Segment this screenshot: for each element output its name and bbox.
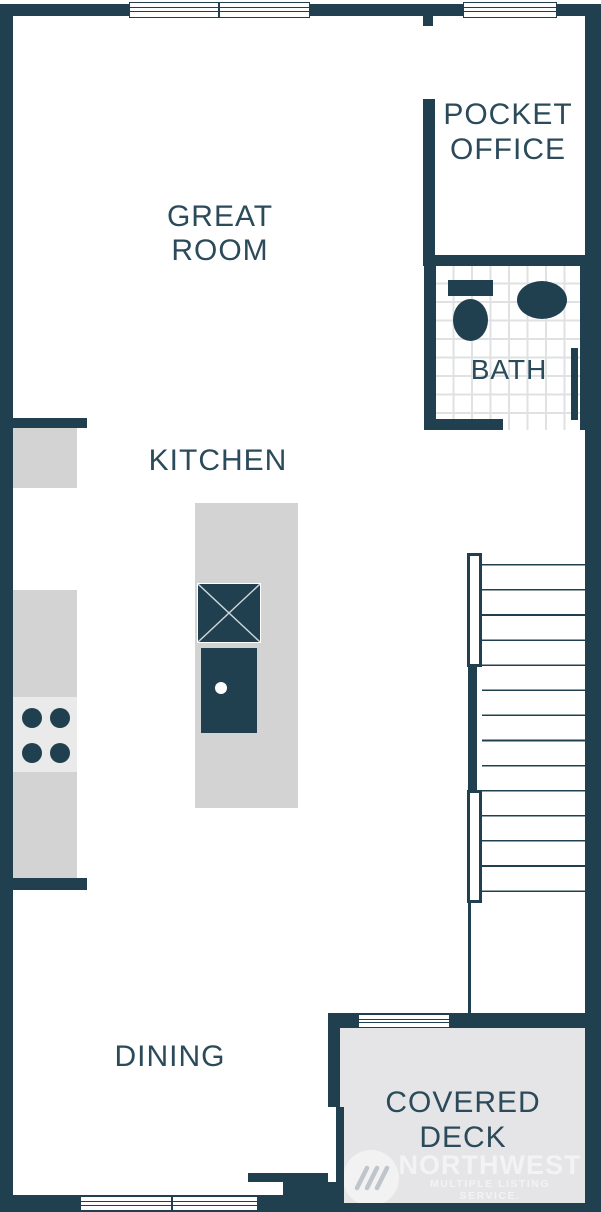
stair-rail-middle <box>468 667 477 790</box>
nwmls-logo-icon <box>343 1150 399 1206</box>
room-label-covered-deck: COVERED DECK <box>383 1085 543 1155</box>
room-label-dining: DINING <box>90 1040 250 1074</box>
great-room-line1: GREAT <box>120 200 320 234</box>
pocket-office-line1: POCKET <box>428 97 588 132</box>
toilet-bowl-icon <box>453 299 488 341</box>
wall-deck-left-line <box>336 1107 344 1187</box>
stair-rail-line <box>468 903 471 1013</box>
room-label-great-room: GREAT ROOM <box>120 200 320 268</box>
window-deck <box>358 1014 450 1028</box>
burner-icon <box>22 743 42 763</box>
window-top-left-mullion <box>218 2 220 18</box>
room-label-bath: BATH <box>459 353 559 387</box>
stair-rail-upper <box>467 553 482 667</box>
wall-bath-right-thick <box>580 266 586 430</box>
wall-office-bath-divider <box>423 255 601 266</box>
covered-deck-line2: DECK <box>383 1120 543 1155</box>
stair-rail-lower <box>467 790 482 903</box>
great-room-line2: ROOM <box>120 234 320 268</box>
stair-treads <box>482 564 585 893</box>
wall-right <box>585 4 601 1212</box>
wall-kitchen-stub-lower <box>0 878 87 890</box>
room-label-pocket-office: POCKET OFFICE <box>428 97 588 167</box>
window-top-right <box>463 2 557 18</box>
window-dining-mullion <box>171 1196 173 1211</box>
floorplan: NORTHWEST MULTIPLE LISTING SERVICE. GREA… <box>0 0 601 1212</box>
window-dining <box>80 1196 258 1211</box>
cooktop-icon <box>197 583 261 643</box>
wall-pocket-office-stub <box>423 16 433 26</box>
sink-icon <box>517 281 567 319</box>
wall-deck-left <box>328 1013 340 1107</box>
wall-bottom-corner-block <box>283 1182 344 1212</box>
burner-icon <box>50 708 70 728</box>
toilet-icon <box>448 280 493 296</box>
pocket-office-line2: OFFICE <box>428 132 588 167</box>
watermark-tagline: MULTIPLE LISTING SERVICE. <box>398 1178 582 1202</box>
wall-bath-bottom <box>424 419 503 430</box>
bath-door-leaf <box>571 348 578 420</box>
wall-bath-left <box>424 266 436 430</box>
range-icon <box>13 697 77 772</box>
island-sink-knob-icon <box>215 682 227 694</box>
counter-upper <box>13 428 77 488</box>
burner-icon <box>50 743 70 763</box>
wall-left <box>0 4 13 1212</box>
wall-deck-bottom <box>344 1203 601 1212</box>
island-sink-cabinet-icon <box>201 648 257 733</box>
covered-deck-line1: COVERED <box>383 1085 543 1120</box>
room-label-kitchen: KITCHEN <box>138 444 298 478</box>
wall-deck-threshold <box>248 1173 328 1182</box>
burner-icon <box>22 708 42 728</box>
wall-kitchen-stub-upper <box>0 418 87 428</box>
